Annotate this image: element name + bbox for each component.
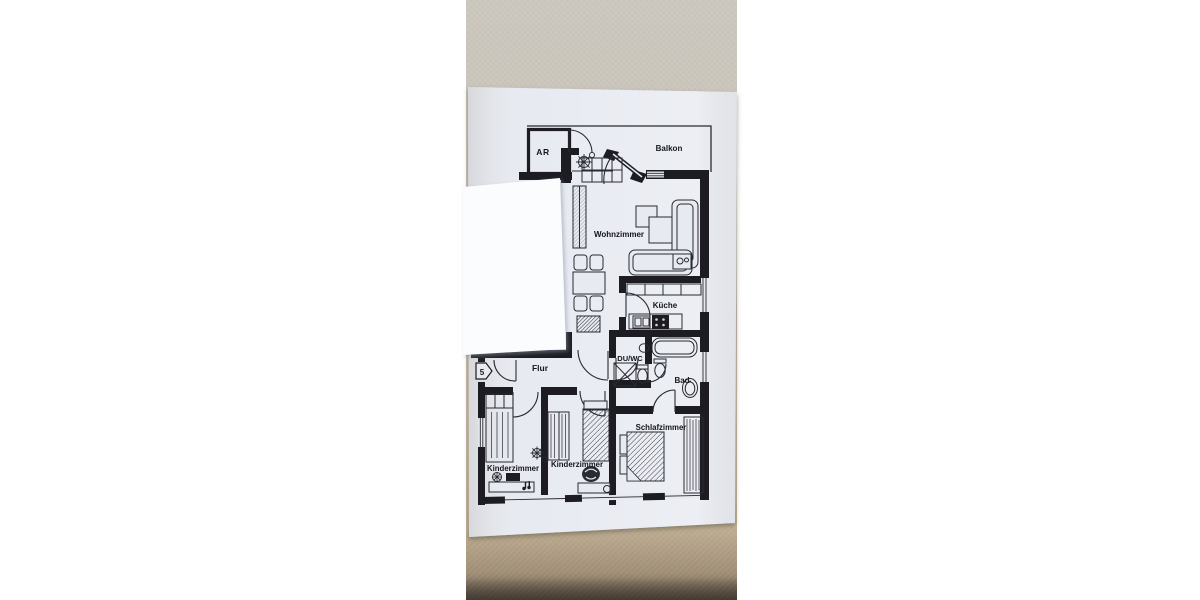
wall-divider — [541, 392, 548, 495]
wall-left — [478, 358, 485, 362]
room-label-kinderzimmer-middle: Kinderzimmer — [551, 460, 603, 469]
entrance-number: 5 — [480, 368, 485, 377]
wall — [566, 332, 572, 350]
wall — [616, 406, 653, 414]
wall — [609, 337, 616, 358]
stove-icon — [652, 315, 669, 329]
room-label-flur: Flur — [532, 363, 549, 373]
room-label-kueche: Küche — [653, 301, 678, 310]
wall-left — [478, 382, 485, 418]
window-kinderzimmer-left-side — [479, 418, 485, 447]
floor-plan-photo-svg: 5 AR Balkon Wohnzimmer Küche DU/WC Bad F… — [0, 0, 1200, 600]
room-label-wohnzimmer: Wohnzimmer — [594, 230, 644, 239]
radiator-icon — [573, 186, 586, 248]
cabinet-icon — [577, 316, 600, 332]
wall — [619, 276, 626, 293]
wall — [619, 317, 626, 330]
double-bed-icon — [620, 432, 664, 481]
wall-left — [478, 447, 485, 505]
photo-bottom-shadow — [466, 578, 737, 600]
wall — [609, 330, 709, 337]
bed-icon-kinderzimmer-middle — [583, 401, 609, 461]
screenshot-root: 5 AR Balkon Wohnzimmer Küche DU/WC Bad F… — [0, 0, 1200, 600]
wall — [620, 276, 703, 283]
wardrobe-icon-kinderzimmer-middle — [548, 412, 569, 460]
room-label-du-wc: DU/WC — [617, 354, 643, 363]
room-label-schlafzimmer: Schlafzimmer — [636, 423, 687, 432]
cover-paper — [463, 178, 566, 355]
room-label-bad: Bad — [674, 376, 689, 385]
room-label-kinderzimmer-left: Kinderzimmer — [487, 464, 539, 473]
window-kueche — [701, 278, 708, 312]
wall-right — [700, 177, 709, 278]
wall — [561, 148, 571, 183]
room-label-ar: AR — [536, 147, 549, 157]
window-bad — [701, 352, 708, 382]
wall — [675, 406, 703, 414]
window-balcony — [647, 172, 664, 178]
room-label-balkon: Balkon — [656, 144, 683, 153]
wall-right — [700, 382, 709, 500]
